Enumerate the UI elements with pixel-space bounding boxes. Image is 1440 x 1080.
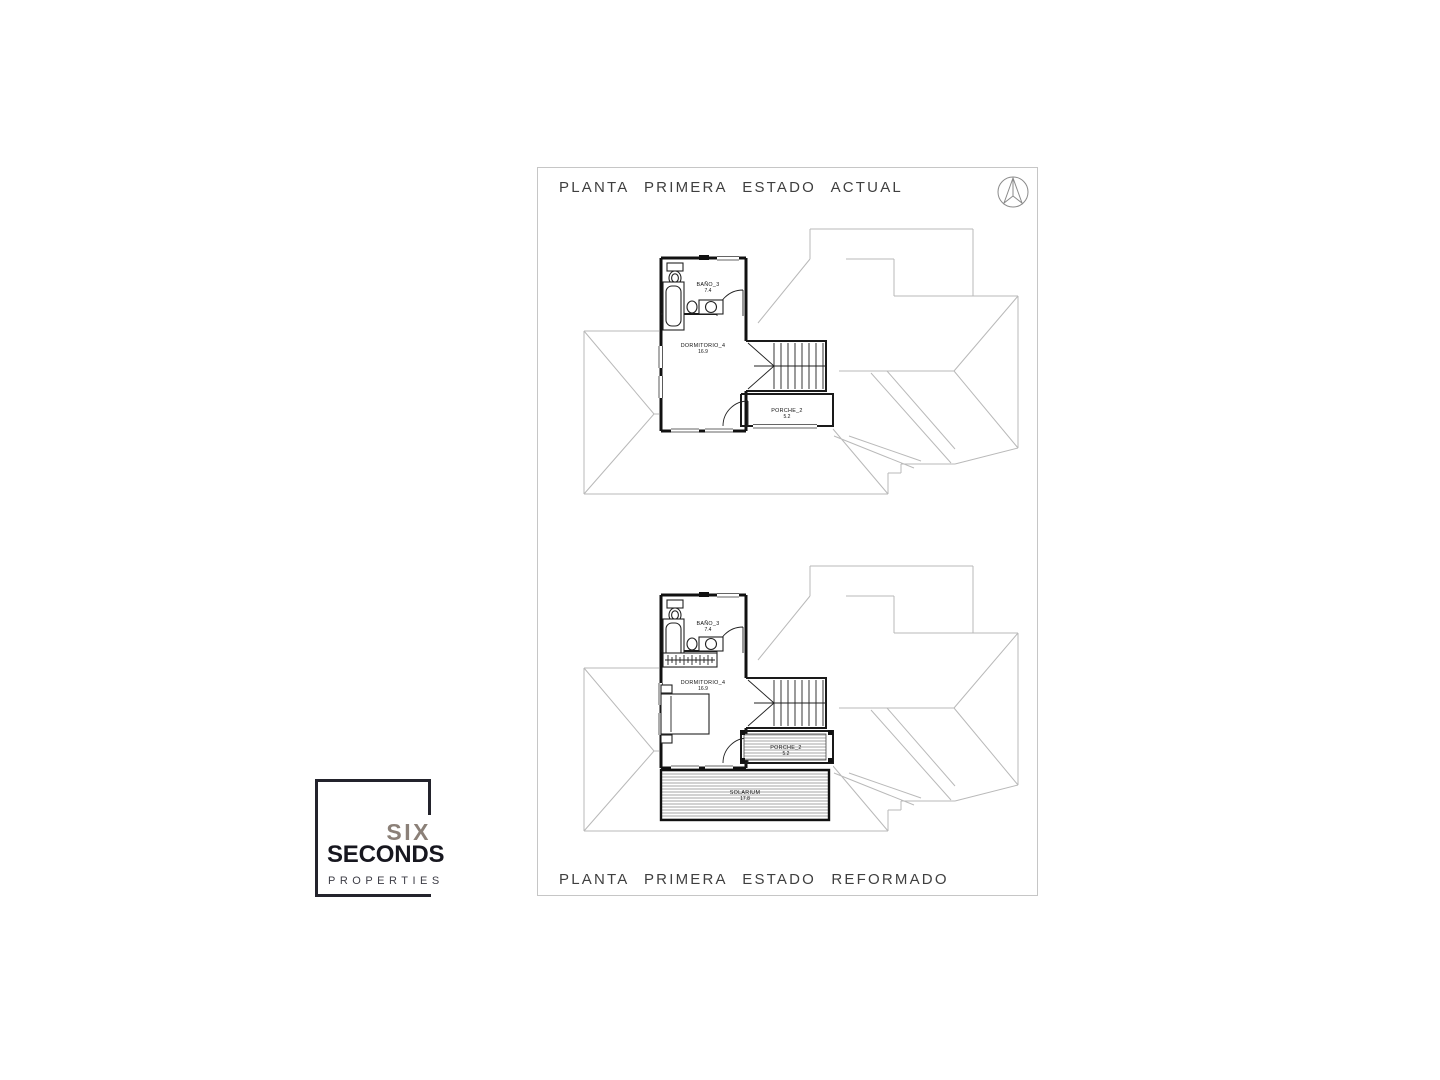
plan-reformado: BAÑO_3 7.4 DORMITORIO_4 16.9 PORCHE_2 5.… (571, 563, 1026, 833)
svg-text:5.2: 5.2 (783, 751, 790, 757)
bed-icon (661, 685, 709, 743)
svg-text:16.9: 16.9 (698, 349, 708, 355)
wall-vent (699, 592, 709, 597)
room-label-bano: BAÑO_3 (696, 281, 719, 288)
page: { "sheet": { "title_top": "PLANTA PRIMER… (0, 0, 1440, 1080)
logo-text-seconds: SECONDS (327, 843, 444, 867)
plan-actual: BAÑO_3 7.4 DORMITORIO_4 16.9 PORCHE_2 5.… (571, 226, 1026, 496)
svg-text:7.4: 7.4 (705, 288, 712, 294)
svg-text:16.9: 16.9 (698, 686, 708, 692)
pedestal-sink-icon (687, 301, 697, 313)
svg-text:7.4: 7.4 (705, 627, 712, 633)
svg-text:5.2: 5.2 (784, 414, 791, 420)
logo-frame-right-stub (428, 779, 431, 815)
toilet-icon (667, 600, 683, 608)
sheet-title-reformado: PLANTA PRIMERA ESTADO REFORMADO (559, 871, 949, 888)
sheet-title-actual: PLANTA PRIMERA ESTADO ACTUAL (559, 179, 903, 196)
toilet-icon (667, 263, 683, 271)
plan-sheet: PLANTA PRIMERA ESTADO ACTUAL (537, 167, 1038, 896)
pedestal-sink-icon (687, 638, 697, 650)
svg-text:17.8: 17.8 (740, 796, 750, 802)
company-logo: SIX SECONDS PROPERTIES (315, 779, 431, 897)
north-arrow-icon (993, 172, 1033, 212)
wardrobe-icon (663, 653, 717, 667)
wall-vent (699, 255, 709, 260)
room-label-bano: BAÑO_3 (696, 620, 719, 627)
logo-text-properties: PROPERTIES (328, 876, 444, 887)
